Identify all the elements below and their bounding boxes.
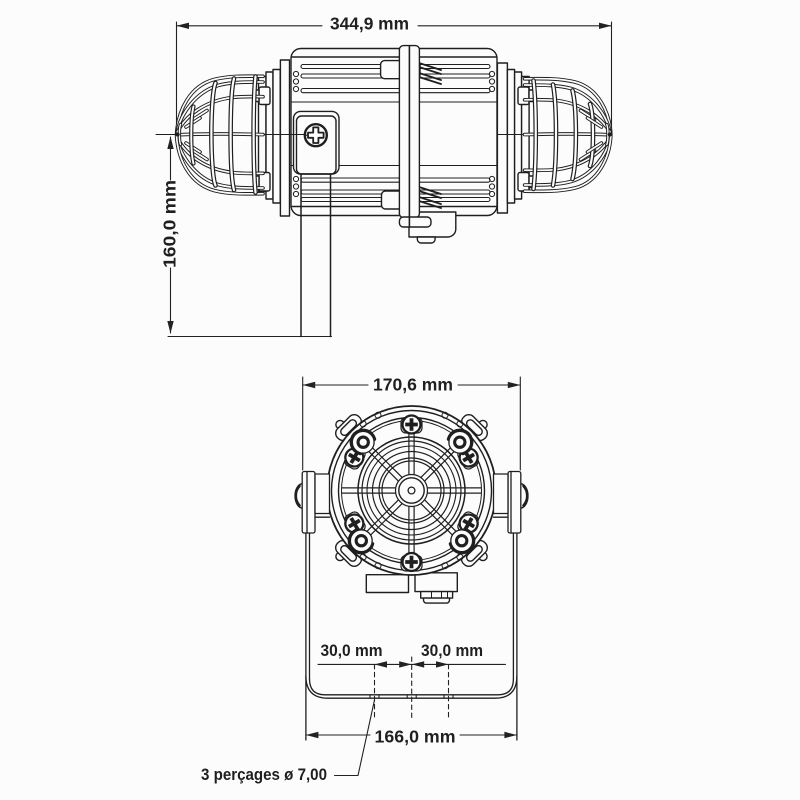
svg-text:3 perçages ø 7,00: 3 perçages ø 7,00 [201, 766, 327, 784]
svg-text:160,0 mm: 160,0 mm [160, 180, 180, 268]
svg-text:344,9 mm: 344,9 mm [330, 14, 409, 34]
svg-text:170,6 mm: 170,6 mm [373, 375, 453, 395]
svg-text:30,0 mm: 30,0 mm [321, 641, 383, 660]
svg-text:30,0 mm: 30,0 mm [421, 641, 483, 660]
svg-text:166,0 mm: 166,0 mm [375, 727, 456, 747]
